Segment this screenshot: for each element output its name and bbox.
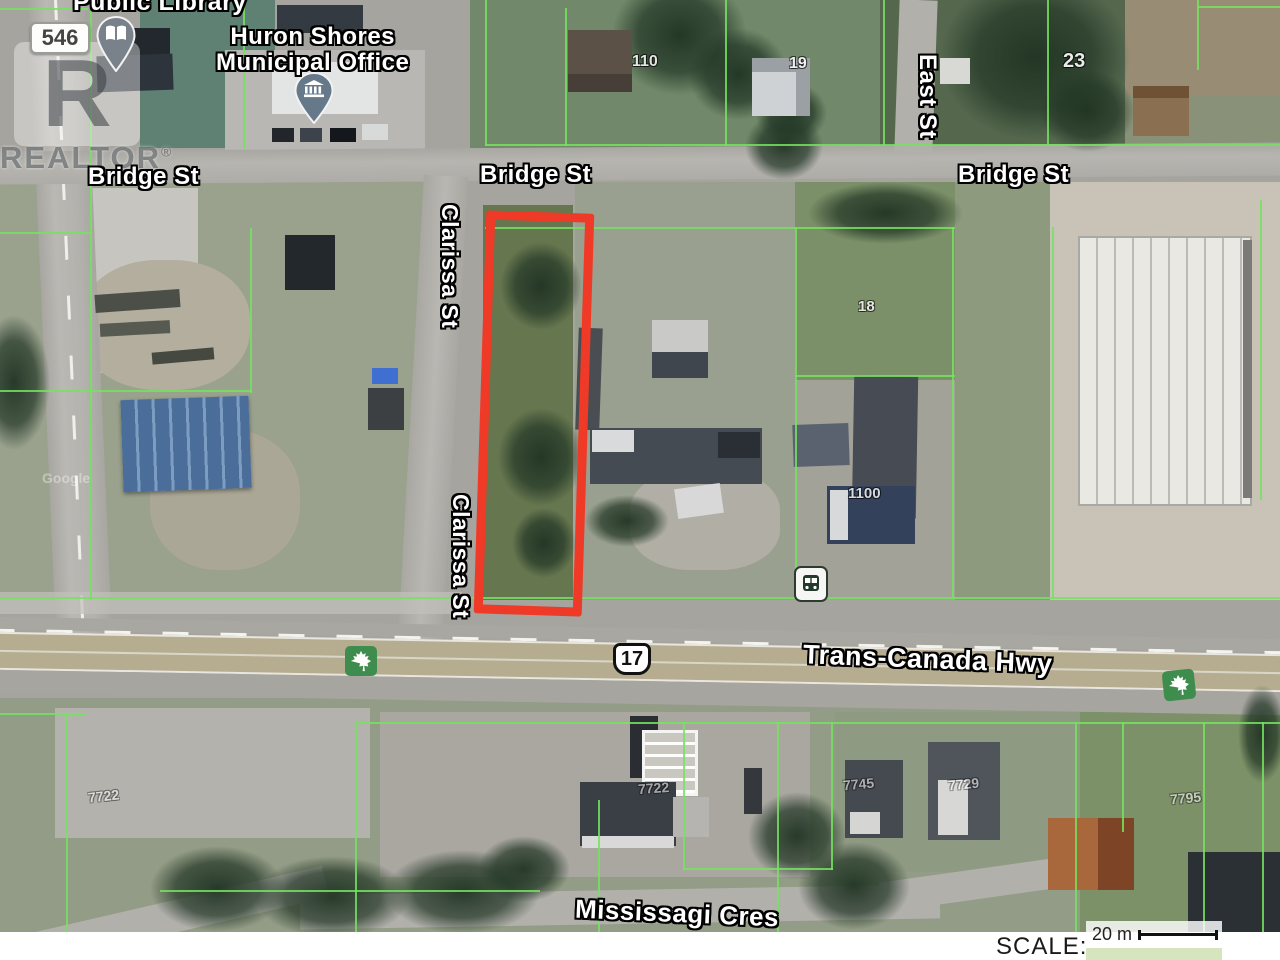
street-label-clarissa-st: Clarissa St [436,204,463,328]
parcel-line [90,150,92,600]
route-17-shield: 17 [613,643,651,675]
house-number: 19 [789,55,807,73]
building-roof [718,432,760,458]
parcel-line [1122,722,1124,832]
car [330,128,356,142]
scale-value: 20 m [1092,924,1132,945]
house-number: 110 [632,53,658,71]
parcel-line [0,390,252,392]
building-roof [582,836,674,848]
truck [674,483,724,519]
shed [673,797,709,837]
parcel-line [0,597,1280,599]
gravel-lane [0,592,462,614]
parcel-line [831,722,833,870]
house-number: 7795 [1169,789,1201,808]
tree-patch [585,495,669,547]
street-label-bridge-st: Bridge St [88,163,199,191]
bus-icon [802,574,820,594]
shed [940,58,970,84]
parcel-line [1052,227,1054,599]
parcel-line [1197,0,1199,70]
blue-tarp [372,368,398,384]
street-label-bridge-st: Bridge St [958,161,1069,189]
scale-green-strip [1086,948,1222,960]
bus-stop-icon [794,566,828,602]
parcel-line [66,713,68,931]
dirt-patch [55,708,370,838]
building-roof [830,490,848,540]
house-number: 1100 [848,485,881,502]
parcel-line [883,0,885,146]
municipal-office-pin-icon [294,72,334,124]
library-pin-icon [96,16,136,72]
building [792,423,849,467]
building [568,30,632,92]
industrial-building [1078,236,1252,506]
parcel-line [725,0,727,146]
parcel-line [565,8,567,146]
poi-label-public-library: Public Library [73,0,247,17]
route-546-badge: 546 [30,22,90,54]
building [1133,86,1189,136]
parcel-line [0,232,92,234]
parcel-line [952,227,954,599]
tree-patch [478,836,570,902]
building-blue-roof [120,396,251,492]
parcel-line [485,0,487,146]
property-highlight-outline [474,210,595,616]
parcel-line [1260,200,1262,500]
scale-label: SCALE: [996,933,1087,960]
truck [744,768,762,814]
parcel-line [485,144,1280,146]
parcel-line [1047,0,1049,146]
building-edge [1243,240,1252,498]
parcel-line [1262,722,1264,932]
tree-patch [1238,685,1280,783]
building [652,320,708,378]
parcel-line [160,890,540,892]
listing-map-screenshot: R REALTOR® Google 546 [0,0,1280,960]
parcel-line [683,868,833,870]
parcel-line [1197,6,1280,8]
ground-patch [955,182,1050,600]
car [362,124,388,140]
parcel-line [1075,722,1077,932]
tree-patch [798,842,910,930]
car [272,128,294,142]
car [300,128,322,142]
parcel-line [355,722,357,934]
parcel-line [355,722,1280,724]
building-roof [850,812,880,834]
house-number: 23 [1063,50,1085,73]
street-label-east-st: East St [913,54,941,139]
tree-patch [1040,70,1135,152]
house-number: 7745 [842,775,874,794]
street-label-bridge-st: Bridge St [480,161,591,189]
parcel-line [795,227,797,599]
scale-bar [1138,930,1218,940]
google-credit: Google [42,470,90,486]
building [285,235,335,290]
scale-widget: 20 m [1086,921,1222,948]
parcel-line [0,713,86,715]
tree-patch [808,182,963,244]
house-number: 7722 [87,786,120,805]
maple-leaf-icon [1162,668,1197,701]
house-number: 7722 [637,779,669,797]
tree-patch [745,112,823,180]
parcel-line [795,375,955,377]
parcel-line [1203,722,1205,932]
parcel-line [250,228,252,393]
ground-patch [1125,0,1280,95]
parcel-line [683,722,685,870]
shed [368,388,404,430]
poi-label-municipal-office: Huron Shores Municipal Office [216,24,409,76]
house-number: 18 [858,298,875,315]
building [1188,852,1280,932]
maple-leaf-icon [345,646,377,676]
house-number: 7729 [947,775,979,794]
street-label-clarissa-st: Clarissa St [447,494,474,618]
building-roof [592,430,634,452]
